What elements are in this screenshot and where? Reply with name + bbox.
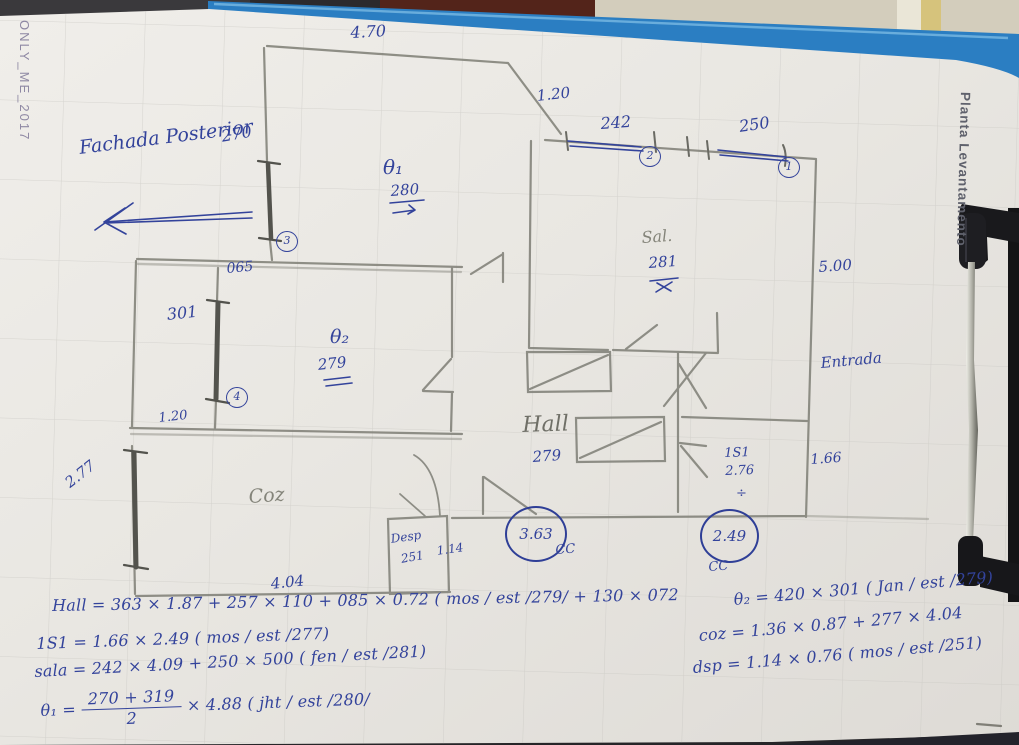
area-circle-3.63: 3.63 (505, 506, 567, 562)
circled-ref-2: 2 (639, 146, 661, 167)
eq-hall: Hall = 363 × 1.87 + 257 × 110 + 085 × 0.… (52, 586, 679, 615)
dim-q1-280: 280 (390, 181, 420, 199)
area-circle-2.49: 2.49 (700, 509, 759, 563)
room-is1: 1S1 (724, 446, 750, 461)
dim-is1-276: 2.76 (725, 464, 754, 479)
dim-277: 2.77 (62, 457, 98, 491)
dim-desp-251: 251 (400, 549, 425, 566)
circled-ref-1: 1 (778, 157, 800, 178)
dim-470: 4.70 (350, 22, 386, 41)
watermark-only-me: ONLY_ME_2017 (17, 20, 32, 141)
annotation-layer: ONLY_ME_2017 Planta Levantamento Fachada… (0, 0, 1019, 745)
dim-242: 242 (600, 113, 632, 133)
label-entrada: Entrada (820, 350, 883, 372)
dim-q2-279: 279 (317, 354, 347, 373)
dim-065: 065 (226, 260, 254, 278)
eq-q1: θ₁ = 270 + 3192 × 4.88 ( jht / est /280/ (40, 682, 371, 730)
room-q2: θ₂ (330, 327, 349, 348)
dim-114: 1.14 (436, 541, 464, 558)
is1-divide-mark: ÷ (736, 487, 747, 501)
dim-270: 270 (220, 123, 253, 146)
dim-404: 4.04 (270, 573, 305, 593)
room-hall: Hall (522, 412, 569, 438)
dim-500: 5.00 (818, 257, 852, 276)
dim-sala-281: 281 (648, 253, 678, 271)
dim-301: 301 (166, 303, 198, 324)
dim-hall-279: 279 (532, 447, 562, 465)
printed-label-planta-levantamento: Planta Levantamento (954, 92, 973, 247)
circled-ref-3: 3 (276, 231, 298, 252)
room-coz: Coz (248, 484, 285, 507)
room-q1: θ₁ (383, 156, 403, 178)
circled-ref-4: 4 (226, 387, 248, 408)
dim-166: 1.66 (810, 451, 842, 469)
dim-250: 250 (738, 114, 771, 136)
clipboard-photo: ONLY_ME_2017 Planta Levantamento Fachada… (0, 0, 1019, 745)
dim-120-left: 1.20 (158, 409, 188, 426)
dim-120-top: 1.20 (536, 85, 571, 105)
room-sala: Sal. (641, 227, 673, 247)
room-desp: Desp (390, 529, 422, 546)
